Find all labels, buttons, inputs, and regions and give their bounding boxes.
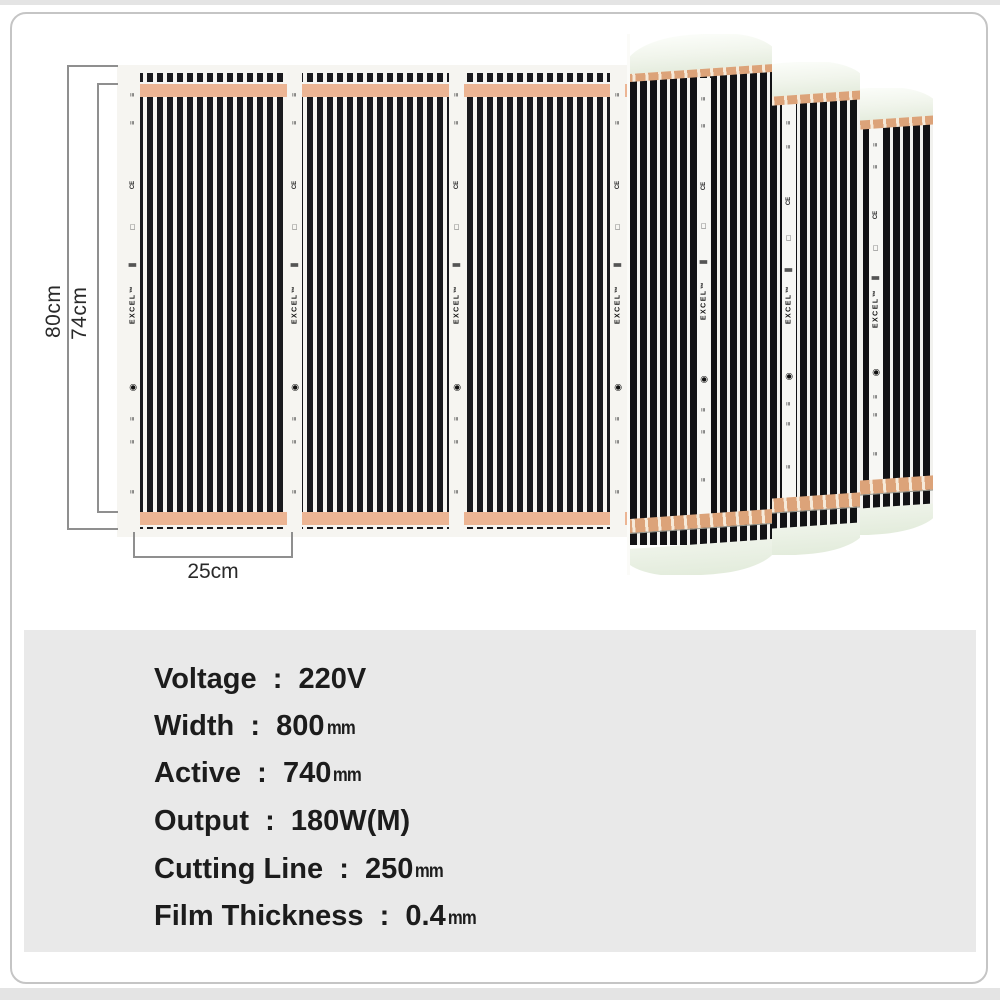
brand-mark: EXCEL™ — [873, 288, 880, 327]
square-mark: □ — [291, 225, 299, 230]
dimension-bracket-25cm — [133, 532, 293, 558]
ticks-mark: ≡ — [701, 96, 708, 101]
spec-row-voltage: Voltage : 220V — [154, 663, 366, 696]
page-edge-bottom — [0, 988, 1000, 1000]
ticks-mark: ≡ — [291, 416, 298, 421]
ticks-mark: ≡ — [291, 120, 298, 125]
dimension-label-80cm: 80cm — [42, 268, 66, 338]
ticks-mark: ≡ — [701, 123, 708, 128]
ticks-mark: ≡ — [129, 439, 136, 444]
logo-mark: ◉ — [290, 384, 299, 392]
spec-separator: : — [364, 900, 406, 932]
ticks-mark: ≡ — [291, 92, 298, 97]
spec-box: Voltage : 220V Width : 800mm Active : 74… — [24, 630, 976, 952]
ticks-mark: ≡ — [701, 429, 708, 434]
roll-brand-column: ≡≡CE□▮EXCEL™◉≡≡≡ — [697, 78, 711, 515]
brand-mark: EXCEL™ — [701, 280, 708, 319]
spec-row-active: Active : 740mm — [154, 757, 363, 790]
spec-label: Cutting Line — [154, 853, 323, 885]
film-stripes — [127, 73, 640, 529]
ticks-mark: ≡ — [614, 416, 621, 421]
spec-unit: mm — [448, 908, 476, 930]
ticks-mark: ≡ — [873, 394, 880, 399]
bar-mark: ▮ — [290, 262, 300, 268]
logo-mark: ◉ — [452, 384, 461, 392]
bar-mark: ▮ — [784, 268, 794, 274]
ticks-mark: ≡ — [614, 489, 621, 494]
film-copper-busbar-top — [127, 82, 640, 97]
square-mark: □ — [129, 225, 137, 230]
spec-label: Voltage — [154, 663, 257, 695]
bar-mark: ▮ — [128, 262, 138, 268]
square-mark: □ — [872, 246, 880, 251]
text-mark: CE — [786, 197, 792, 205]
spec-row-output: Output : 180W(M) — [154, 805, 410, 838]
ticks-mark: ≡ — [129, 92, 136, 97]
text-mark: CE — [130, 181, 136, 189]
ticks-mark: ≡ — [873, 163, 880, 168]
ticks-mark: ≡ — [701, 407, 708, 412]
page-edge-top — [0, 0, 1000, 5]
ticks-mark: ≡ — [873, 451, 880, 456]
ticks-mark: ≡ — [614, 439, 621, 444]
heating-film-sheet: ≡≡CE□▮EXCEL™◉≡≡≡ ≡≡CE□▮EXCEL™◉≡≡≡ ≡≡CE□▮… — [117, 65, 640, 537]
ticks-mark: ≡ — [291, 489, 298, 494]
bar-mark: ▮ — [871, 275, 881, 281]
ticks-mark: ≡ — [786, 401, 793, 406]
ticks-mark: ≡ — [129, 120, 136, 125]
ticks-mark: ≡ — [786, 421, 793, 426]
brand-mark: EXCEL™ — [453, 285, 460, 324]
ticks-mark: ≡ — [453, 489, 460, 494]
square-mark: □ — [700, 224, 708, 229]
brand-mark: EXCEL™ — [129, 285, 136, 324]
product-image-page: { "product": { "type": "infrared-heating… — [0, 0, 1000, 1000]
spec-row-film-thickness: Film Thickness : 0.4mm — [154, 900, 478, 933]
spec-value: 180W(M) — [291, 805, 410, 837]
spec-unit: mm — [333, 765, 361, 787]
logo-mark: ◉ — [872, 369, 881, 377]
ticks-mark: ≡ — [129, 416, 136, 421]
bar-mark: ▮ — [699, 259, 709, 265]
bar-mark: ▮ — [452, 262, 462, 268]
ticks-mark: ≡ — [873, 412, 880, 417]
film-brand-column: ≡≡CE□▮EXCEL™◉≡≡≡ — [610, 73, 625, 529]
spec-separator: : — [323, 853, 365, 885]
text-mark: CE — [615, 181, 621, 189]
logo-mark: ◉ — [700, 376, 709, 384]
brand-mark: EXCEL™ — [786, 285, 793, 324]
logo-mark: ◉ — [613, 384, 622, 392]
ticks-mark: ≡ — [453, 439, 460, 444]
ticks-mark: ≡ — [453, 416, 460, 421]
square-mark: □ — [785, 235, 793, 240]
ticks-mark: ≡ — [129, 489, 136, 494]
film-brand-column: ≡≡CE□▮EXCEL™◉≡≡≡ — [287, 73, 302, 529]
ticks-mark: ≡ — [614, 120, 621, 125]
spec-label: Output — [154, 805, 249, 837]
text-mark: CE — [873, 211, 879, 219]
ticks-mark: ≡ — [786, 464, 793, 469]
spec-separator: : — [241, 757, 283, 789]
brand-mark: EXCEL™ — [291, 285, 298, 324]
spec-label: Film Thickness — [154, 900, 364, 932]
film-brand-column: ≡≡CE□▮EXCEL™◉≡≡≡ — [449, 73, 464, 529]
spec-row-cutting-line: Cutting Line : 250mm — [154, 853, 445, 886]
film-brand-column: ≡≡CE□▮EXCEL™◉≡≡≡ — [125, 73, 140, 529]
spec-unit: mm — [415, 861, 443, 883]
spec-value: 740 — [283, 757, 331, 789]
spec-value: 220V — [298, 663, 366, 695]
square-mark: □ — [453, 225, 461, 230]
ticks-mark: ≡ — [786, 120, 793, 125]
square-mark: □ — [614, 225, 622, 230]
spec-separator: : — [249, 805, 291, 837]
roll-brand-column: ≡≡CE□▮EXCEL™◉≡≡≡ — [869, 127, 883, 482]
film-copper-busbar-bottom — [127, 512, 640, 527]
dimension-label-25cm: 25cm — [133, 560, 293, 584]
ticks-mark: ≡ — [291, 439, 298, 444]
ticks-mark: ≡ — [453, 92, 460, 97]
ticks-mark: ≡ — [614, 92, 621, 97]
roll-brand-column: ≡≡CE□▮EXCEL™◉≡≡≡ — [782, 103, 796, 499]
logo-mark: ◉ — [128, 384, 137, 392]
spec-unit: mm — [326, 718, 354, 740]
spec-separator: : — [257, 663, 299, 695]
ticks-mark: ≡ — [701, 477, 708, 482]
text-mark: CE — [292, 181, 298, 189]
spec-value: 800 — [276, 710, 324, 742]
spec-label: Active — [154, 757, 241, 789]
ticks-mark: ≡ — [786, 144, 793, 149]
brand-mark: EXCEL™ — [614, 285, 621, 324]
spec-value: 0.4 — [405, 900, 445, 932]
spec-label: Width — [154, 710, 234, 742]
dimension-bracket-74cm — [97, 83, 118, 513]
spec-separator: : — [234, 710, 276, 742]
ticks-mark: ≡ — [453, 120, 460, 125]
spec-row-width: Width : 800mm — [154, 710, 356, 743]
text-mark: CE — [454, 181, 460, 189]
bar-mark: ▮ — [613, 262, 623, 268]
ticks-mark: ≡ — [873, 142, 880, 147]
film-roll-1: ≡≡CE□▮EXCEL™◉≡≡≡ — [627, 34, 772, 575]
spec-value: 250 — [365, 853, 413, 885]
text-mark: CE — [701, 182, 707, 190]
logo-mark: ◉ — [785, 373, 794, 381]
